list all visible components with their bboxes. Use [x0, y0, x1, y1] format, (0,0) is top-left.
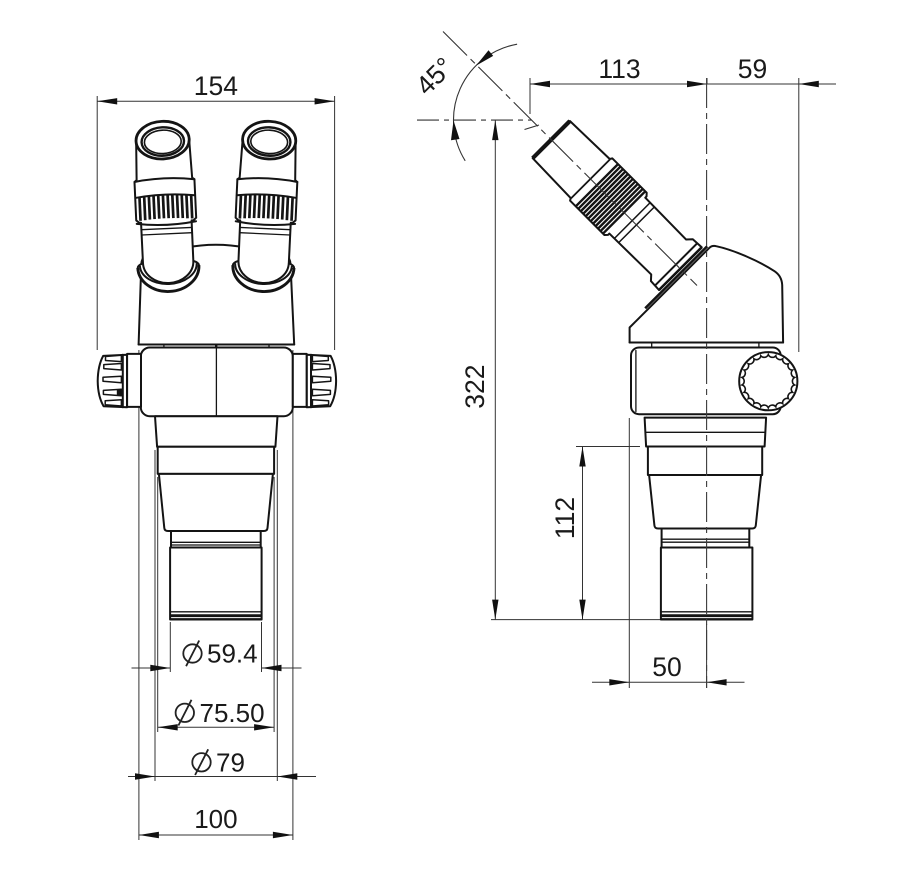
svg-text:75.50: 75.50 — [200, 698, 265, 728]
svg-text:100: 100 — [194, 804, 237, 834]
svg-text:59: 59 — [738, 54, 767, 84]
svg-text:79: 79 — [216, 748, 245, 778]
svg-text:112: 112 — [550, 497, 580, 539]
svg-text:113: 113 — [598, 54, 640, 84]
svg-text:322: 322 — [460, 364, 490, 408]
svg-text:154: 154 — [194, 71, 238, 101]
svg-text:50: 50 — [652, 652, 681, 682]
svg-text:59.4: 59.4 — [207, 639, 258, 669]
